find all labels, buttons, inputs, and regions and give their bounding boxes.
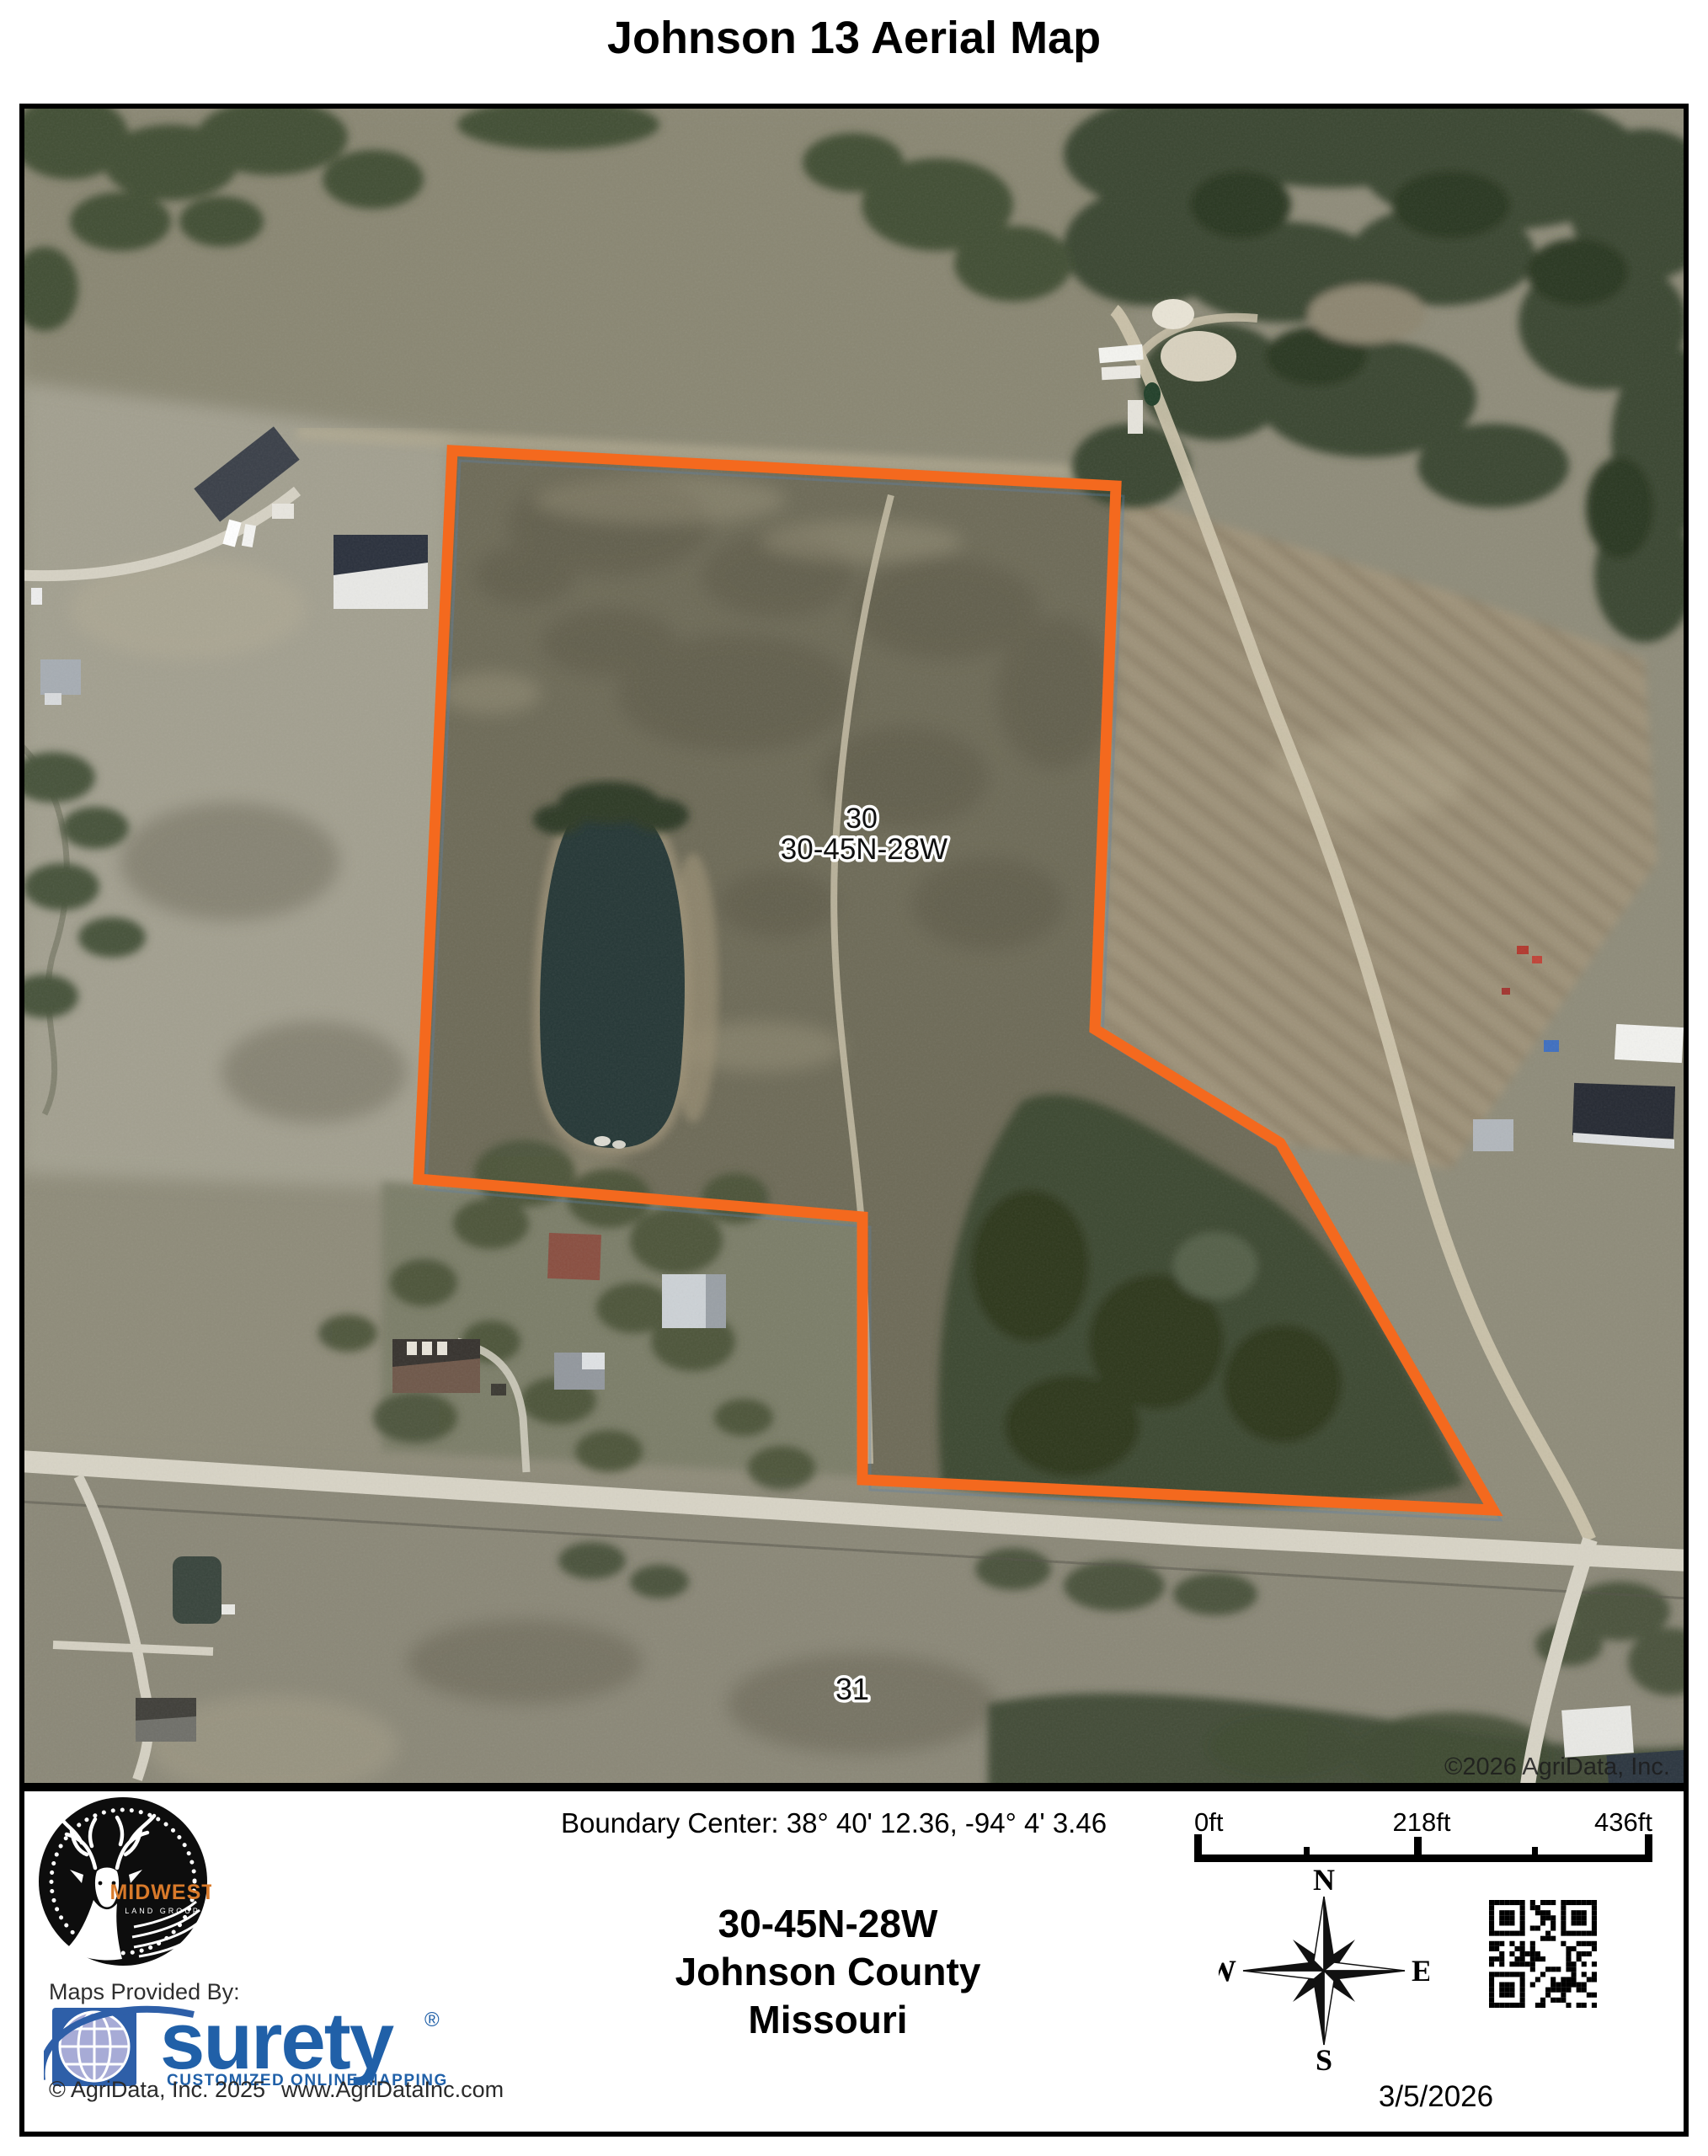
compass-rose: N E S W	[1219, 1863, 1429, 2073]
maps-provided-label: Maps Provided By:	[49, 1979, 240, 2005]
agridata-copyright: © AgriData, Inc. 2025	[49, 2077, 265, 2103]
agridata-website: www.AgriDataInc.com	[281, 2077, 504, 2103]
location-block: 30-45N-28W Johnson County Missouri	[609, 1900, 1047, 2044]
compass-north-label: N	[1313, 1863, 1335, 1897]
page-title: Johnson 13 Aerial Map	[0, 12, 1708, 64]
scale-label-end: 436ft	[1594, 1809, 1652, 1837]
compass-south-label: S	[1316, 2043, 1332, 2073]
qr-code	[1489, 1900, 1597, 2008]
surety-registered-mark: ®	[424, 2009, 440, 2031]
scale-label-middle: 218ft	[1393, 1809, 1451, 1837]
page: Johnson 13 Aerial Map	[0, 0, 1708, 2156]
map-date: 3/5/2026	[1348, 2080, 1524, 2114]
imagery-credit: ©2026 AgriData, Inc.	[1444, 1753, 1670, 1780]
location-county: Johnson County	[609, 1948, 1047, 1996]
boundary-center-text: Boundary Center: 38° 40' 12.36, -94° 4' …	[455, 1807, 1213, 1839]
section-number-label: 30	[846, 803, 878, 835]
logo-subtitle-text: LAND GROUP	[125, 1907, 200, 1915]
aerial-map-image: 30 30-45N-28W 31 ©2026 AgriData, Inc.	[19, 104, 1689, 1791]
surety-globe-grid	[60, 2012, 129, 2081]
adjacent-section-label: 31	[835, 1672, 869, 1706]
map-footer-divider	[19, 1783, 1689, 1791]
logo-brand-text: MIDWEST	[109, 1881, 211, 1904]
compass-west-label: W	[1219, 1954, 1236, 1988]
imagery-grain	[19, 104, 1689, 1791]
location-township: 30-45N-28W	[609, 1900, 1047, 1948]
scale-label-start: 0ft	[1194, 1809, 1224, 1837]
location-state: Missouri	[609, 1996, 1047, 2044]
compass-east-label: E	[1412, 1954, 1429, 1988]
midwest-land-group-logo: MIDWEST LAND GROUP	[35, 1792, 211, 1971]
section-trs-label: 30-45N-28W	[781, 833, 947, 866]
compass-cardinal-points	[1243, 1897, 1405, 2045]
